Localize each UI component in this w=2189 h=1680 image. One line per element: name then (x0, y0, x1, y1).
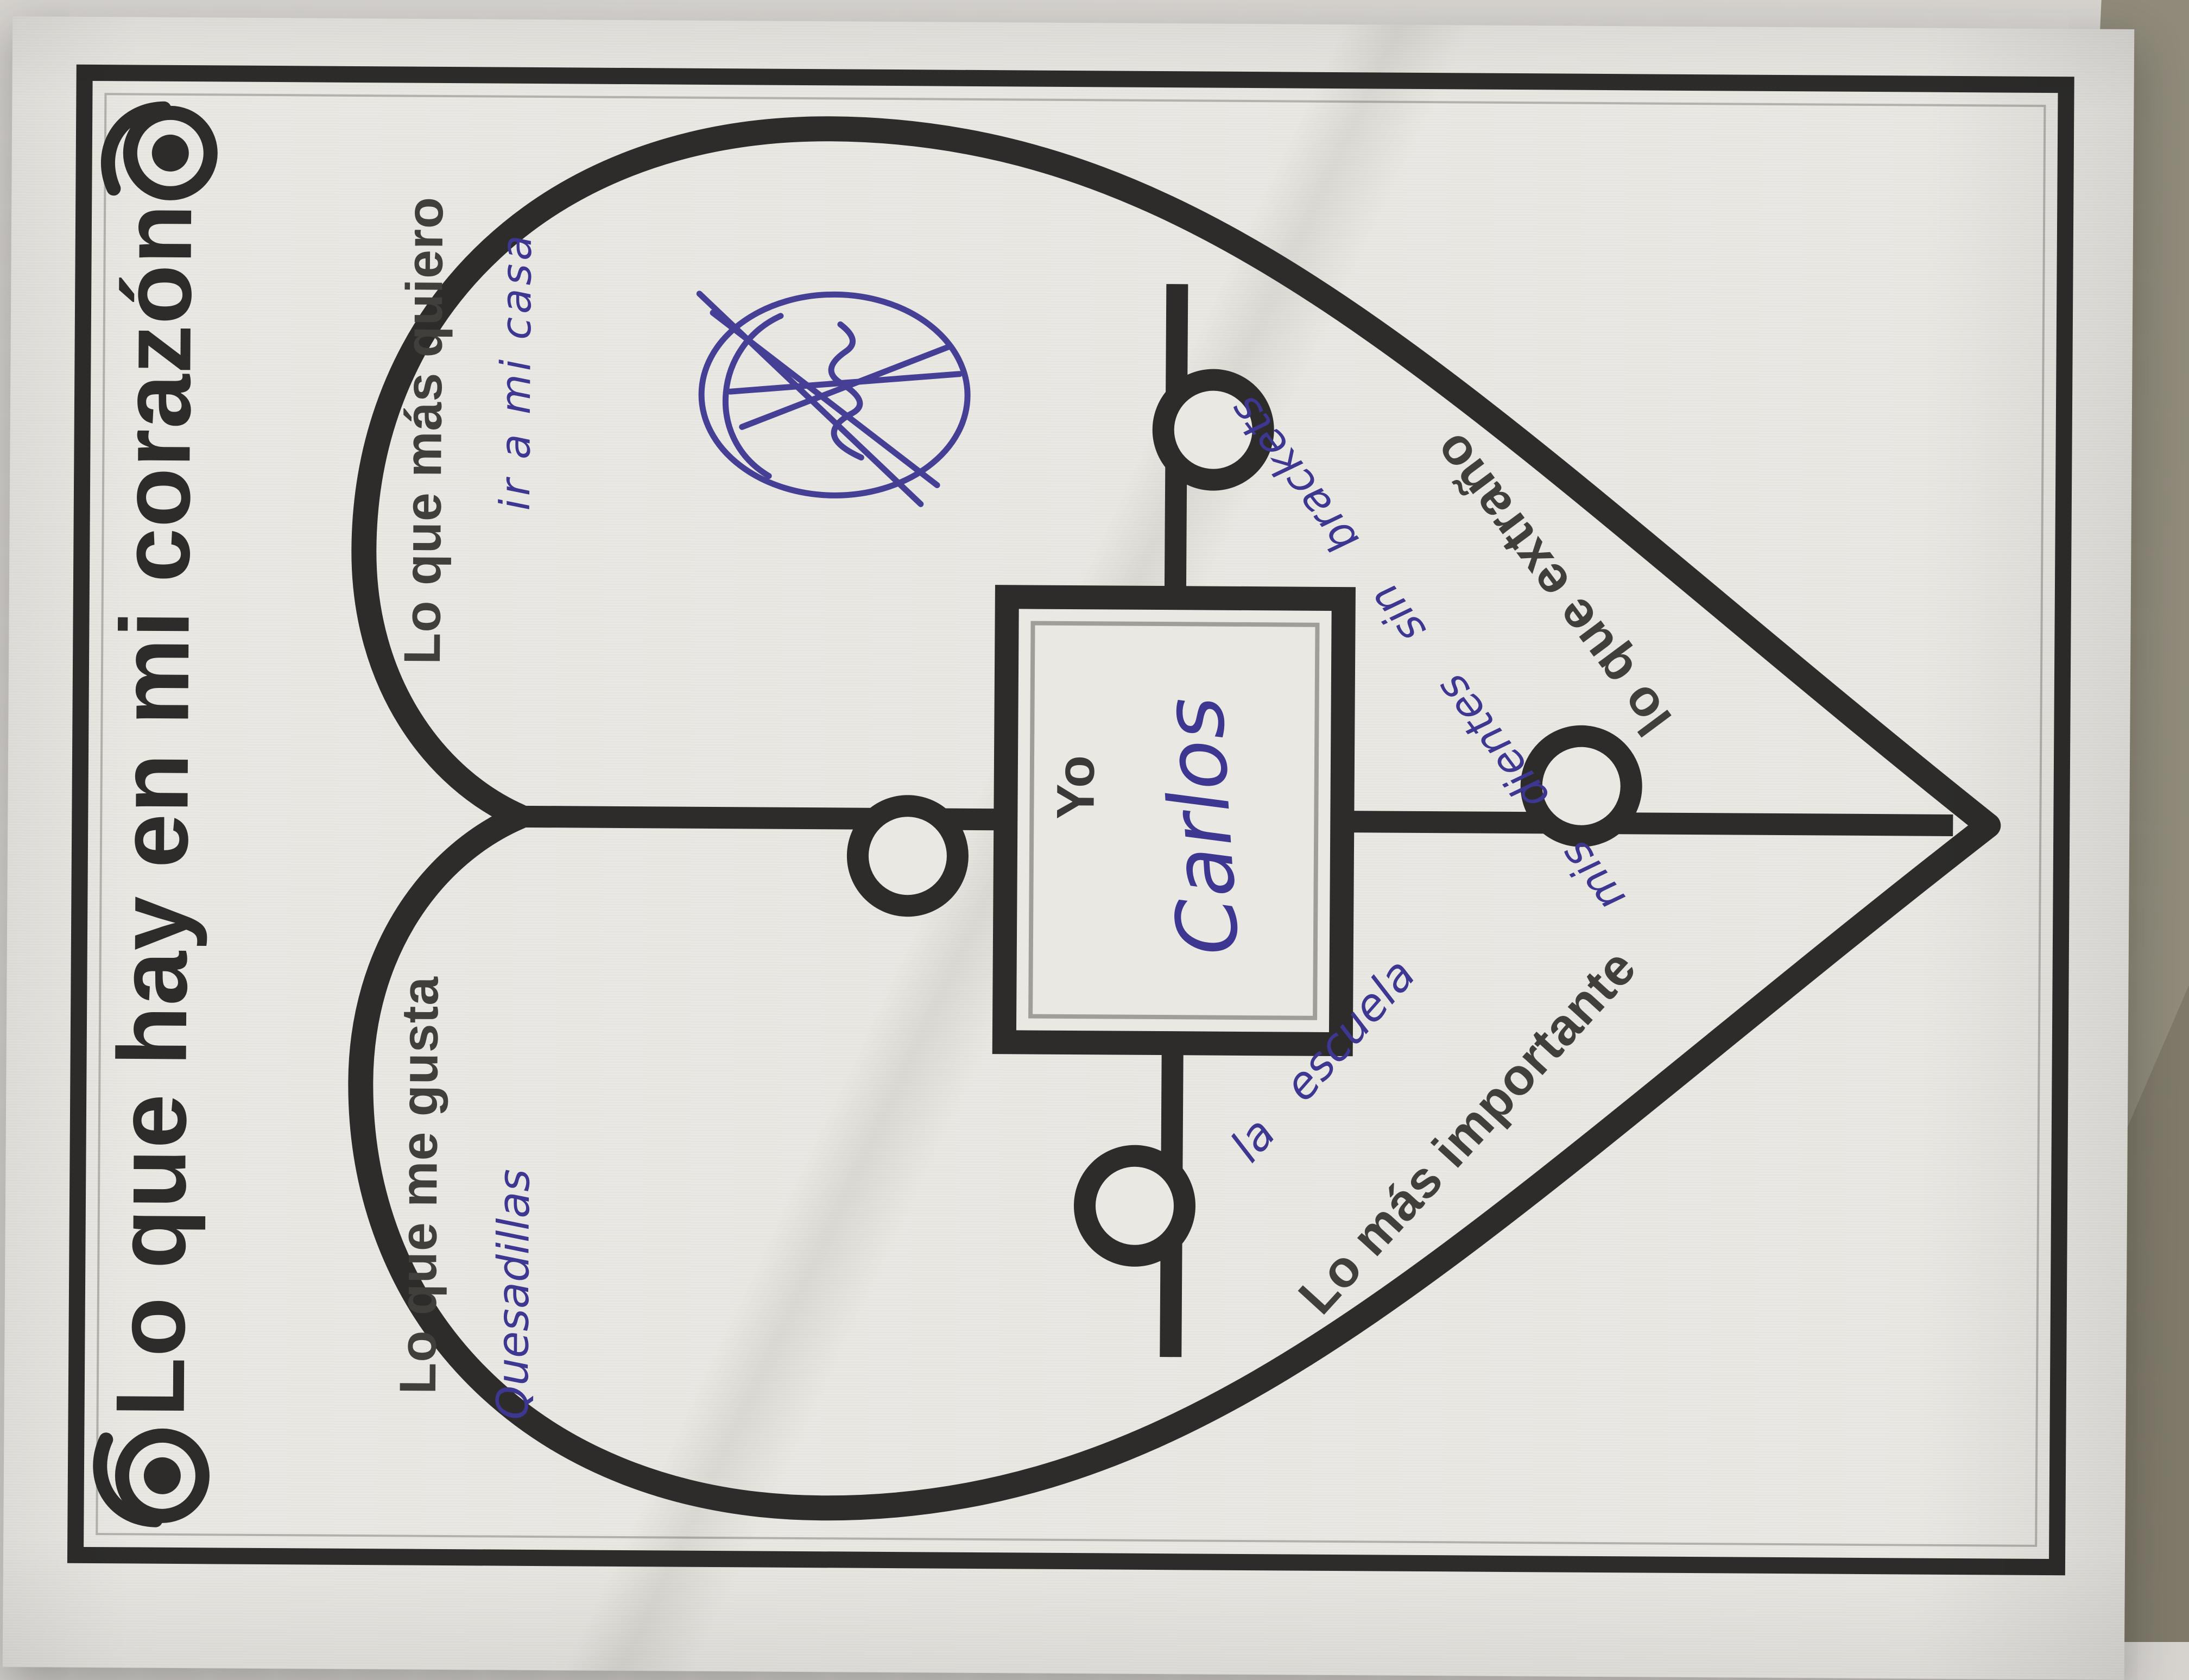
worksheet-title: Lo que hay en mi corazón (94, 211, 214, 1417)
corner-spiral-ornament-left (85, 1408, 222, 1545)
scribble-oval (701, 294, 968, 496)
puzzle-knob-top (857, 806, 958, 906)
label-lo-que-me-gusta: Lo que me gusta (388, 913, 451, 1457)
handwriting-quesadillas: Quesadillas (487, 1104, 540, 1485)
photo-of-worksheet: { "photo": { "surface_color": "#d6d3cf",… (0, 0, 2189, 1642)
corner-spiral-ornament-right (93, 84, 230, 221)
handwriting-ir-a-mi-casa: ir a mi casa (490, 127, 541, 616)
label-lo-que-mas-quiero: Lo que más quiero (393, 159, 455, 702)
pen-scribble (666, 280, 982, 510)
worksheet-rotated-wrap: Lo que hay en mi corazón Lo que me gus (35, 31, 2108, 1608)
scribble-arc (725, 315, 781, 476)
worksheet-paper: Lo que hay en mi corazón Lo que me gus (3, 16, 2134, 1680)
worksheet-sheet: Lo que hay en mi corazón Lo que me gus (35, 31, 2108, 1608)
puzzle-knob-left (1084, 1155, 1185, 1256)
spiral-dot (152, 135, 189, 172)
divider-bottom-vertical (1334, 822, 1953, 825)
spiral-dot (144, 1457, 181, 1494)
center-square-label: Yo (1044, 652, 1107, 924)
